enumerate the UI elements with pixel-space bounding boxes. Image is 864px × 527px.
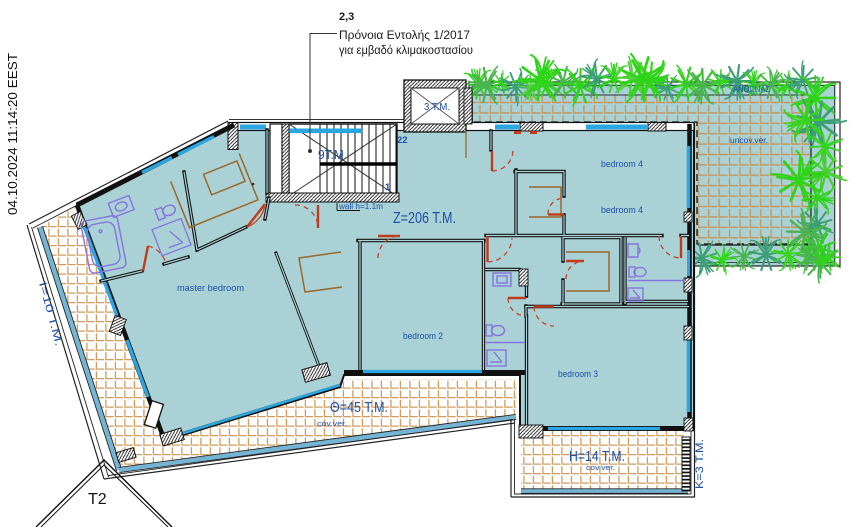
- svg-text:3 T.M.: 3 T.M.: [424, 101, 450, 113]
- svg-text:bedroom 4: bedroom 4: [601, 159, 643, 169]
- svg-text:wall h=1.1m: wall h=1.1m: [338, 202, 383, 211]
- svg-text:ΑΝΘΩΝΑΣ: ΑΝΘΩΝΑΣ: [733, 85, 770, 94]
- svg-text:Z=206 T.M.: Z=206 T.M.: [393, 210, 456, 227]
- svg-text:2,3: 2,3: [339, 11, 354, 23]
- svg-text:Πρόνοια Εντολής 1/2017: Πρόνοια Εντολής 1/2017: [339, 30, 470, 42]
- svg-text:bedroom 2: bedroom 2: [403, 331, 443, 341]
- svg-text:1: 1: [385, 182, 391, 193]
- svg-text:uncov.ver.: uncov.ver.: [730, 135, 768, 145]
- svg-text:K=3 T.M.: K=3 T.M.: [694, 439, 706, 489]
- svg-text:cov.ver.: cov.ver.: [586, 463, 615, 472]
- svg-text:bedroom 3: bedroom 3: [558, 369, 598, 379]
- svg-text:22: 22: [397, 135, 408, 146]
- svg-text:bedroom 4: bedroom 4: [601, 205, 643, 215]
- svg-text:master bedroom: master bedroom: [177, 283, 244, 293]
- svg-text:T2: T2: [88, 491, 107, 508]
- svg-text:9T.M.: 9T.M.: [318, 147, 347, 162]
- svg-text:04.10.2024 11:14:20 EEST: 04.10.2024 11:14:20 EEST: [5, 53, 20, 215]
- svg-text:Θ=45 T.M.: Θ=45 T.M.: [330, 400, 388, 416]
- svg-text:για εμβαδό κλιμακοστασίου: για εμβαδό κλιμακοστασίου: [339, 45, 473, 57]
- svg-text:cov.ver.: cov.ver.: [317, 419, 347, 428]
